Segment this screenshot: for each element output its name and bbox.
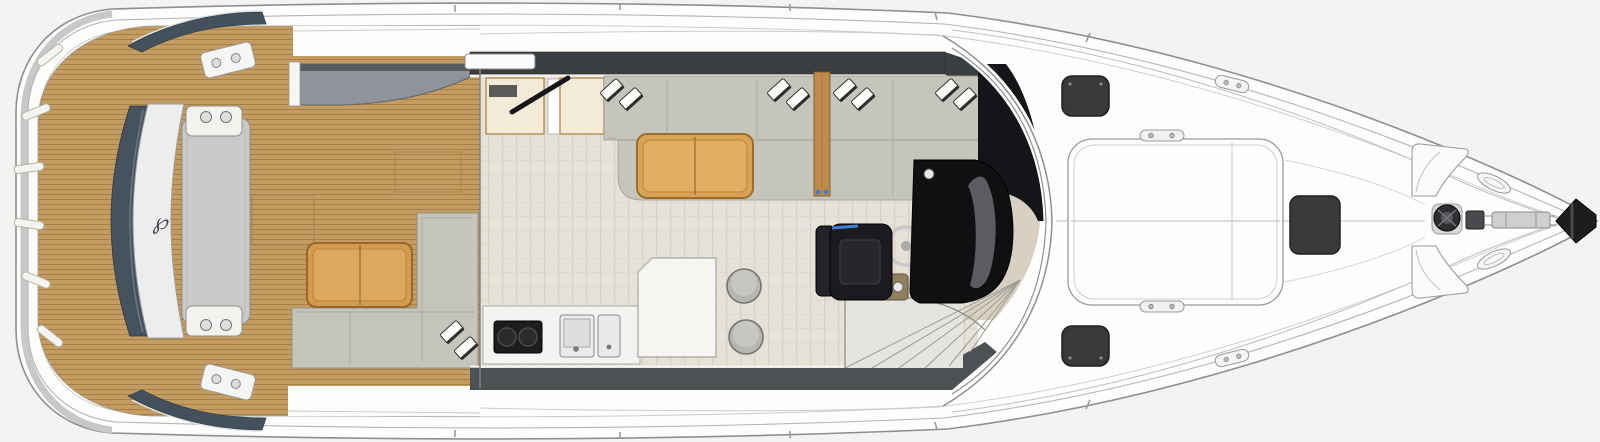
island-counter	[638, 258, 716, 357]
anchor-shaft	[1492, 212, 1550, 228]
cooktop	[494, 321, 542, 353]
chain-stopper	[1466, 211, 1484, 229]
transom-sunpad	[182, 118, 250, 324]
helm-console	[910, 160, 1013, 303]
foredeck-sunpad	[1068, 130, 1283, 312]
cockpit-table	[307, 243, 412, 307]
galley-sink	[560, 315, 620, 357]
yacht-deck-plan: ℘	[0, 0, 1600, 442]
steering-wheel-hub	[901, 241, 911, 251]
deck-plan-drawing: ℘	[0, 0, 1600, 442]
transom-logo: ℘	[152, 210, 169, 235]
sofa-divider-pillar	[814, 72, 830, 196]
seat-blue-accent	[832, 226, 858, 228]
seat-quilting	[840, 240, 880, 284]
sliding-door-panel	[465, 54, 535, 69]
coffee-table	[637, 134, 753, 198]
console-hinge	[924, 169, 934, 179]
window-band-top	[470, 52, 945, 74]
